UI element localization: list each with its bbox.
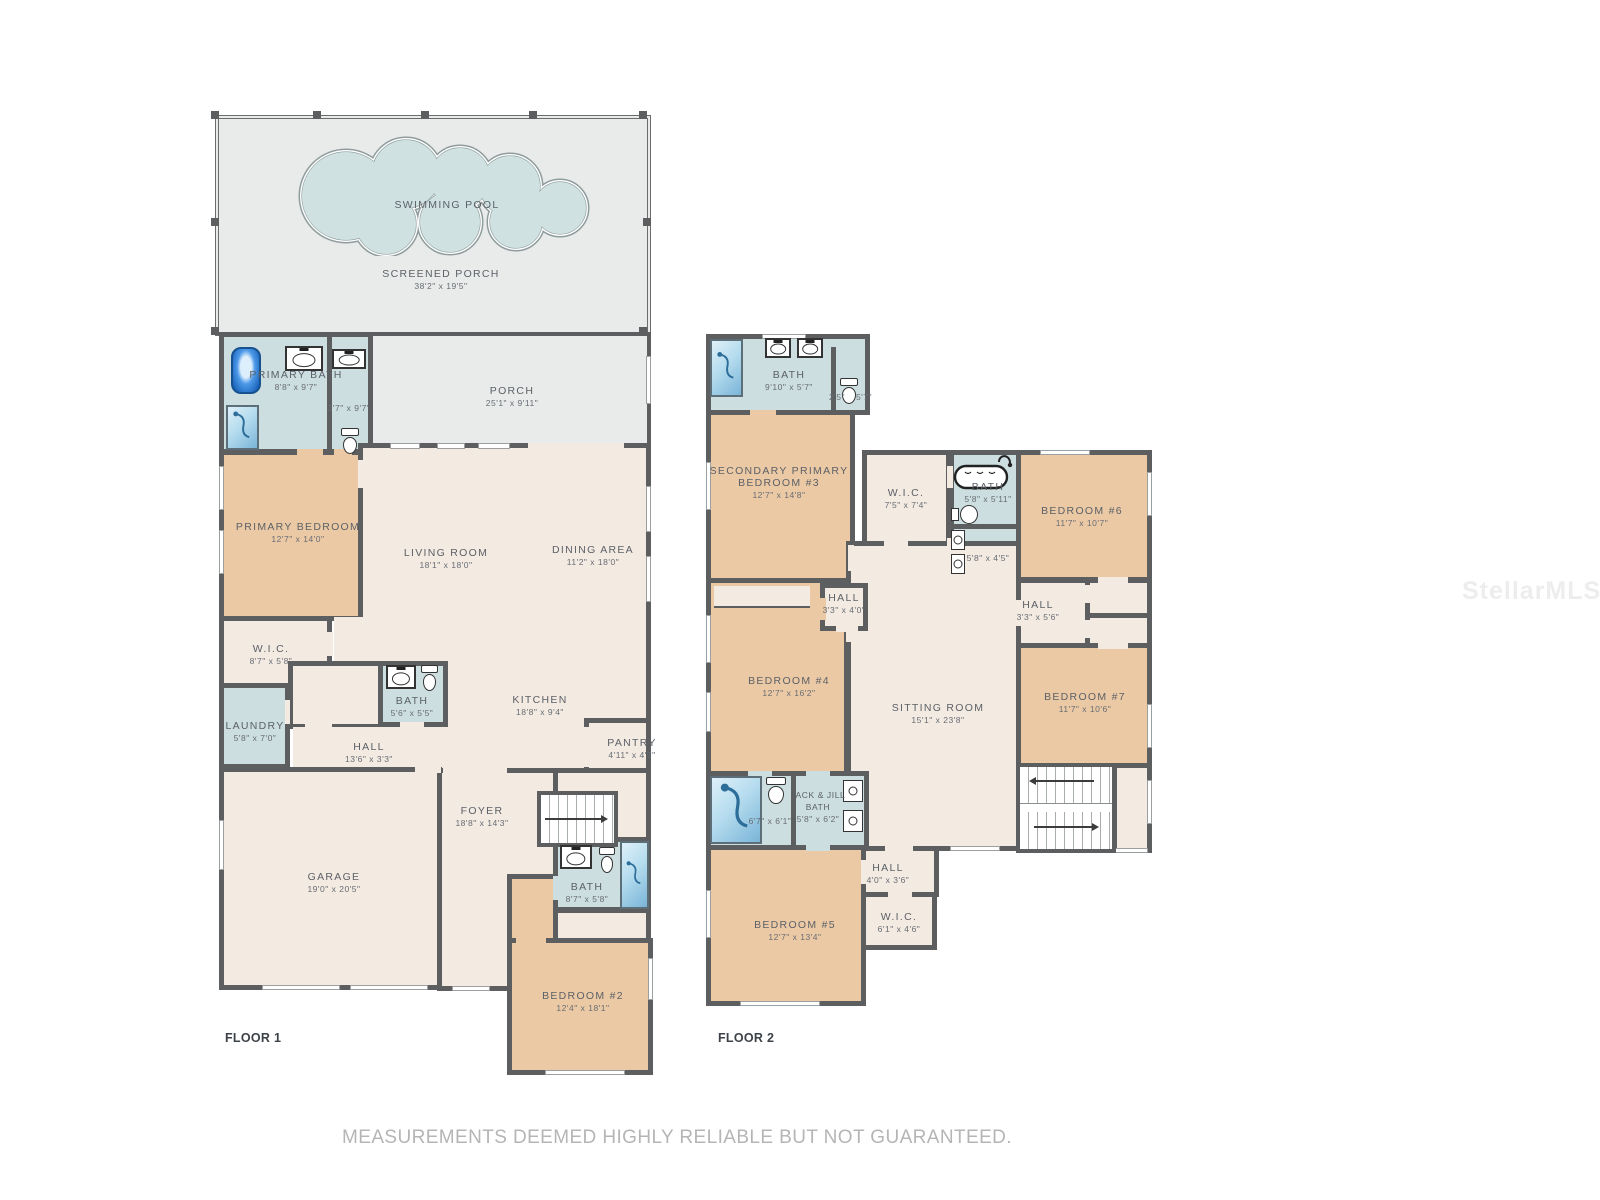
room-dims: 6'1" x 4'6" [878,924,921,935]
sink-icon [797,338,823,358]
hall-b-label: HALL 3'3" x 5'6" [1017,599,1060,623]
door-opening [584,736,590,758]
room-dims: 13'6" x 3'3" [345,754,393,765]
room-name: PRIMARY BEDROOM [236,521,360,533]
room-sitting [846,541,1021,851]
window [1040,450,1090,455]
bedroom5-label: BEDROOM #5 12'7" x 13'4" [754,919,836,943]
window [390,443,420,449]
garage-label: GARAGE 19'0" x 20'5" [307,871,360,895]
bedroom4-label: BEDROOM #4 12'7" x 16'2" [748,675,830,699]
room-name: BEDROOM #6 [1041,505,1123,517]
room-dims: 9'10" x 5'7" [765,382,813,393]
linen-label: 5'8" x 4'5" [967,552,1010,564]
door-opening [750,410,776,416]
floor2-caption: FLOOR 2 [718,1031,774,1045]
stair-arrow-head [601,815,608,823]
porch-post [211,218,219,226]
room-name: FOYER [455,805,508,817]
window [219,466,224,510]
wic3-label: W.I.C. 6'1" x 4'6" [878,911,921,935]
room-name: BATH [566,881,609,893]
cabinet-icon [951,554,965,574]
door-opening [400,722,424,728]
room-name: BEDROOM #4 [748,675,830,687]
room-name: HALL [1017,599,1060,611]
hall-a-label: HALL 3'3" x 4'0" [823,592,866,616]
room-closet-b1 [1085,578,1152,618]
room-dims: 3'3" x 5'6" [1017,612,1060,623]
shower-room-label: 6'7" x 6'1" [749,815,792,827]
stair-arrow-line [1036,780,1094,782]
window [478,443,510,449]
bedroom3-label: SECONDARY PRIMARY BEDROOM #3 12'7" x 14'… [710,465,849,501]
water-closet-label: 3'7" x 9'7" [328,402,371,414]
room-dims: 12'7" x 14'0" [236,534,360,545]
bedroom-corridor-floor [334,617,378,661]
door-opening [806,771,830,777]
door-opening [297,449,323,455]
window [437,443,465,449]
wic2-label: W.I.C. 7'5" x 7'4" [885,487,928,511]
swimming-pool-label: SWIMMING POOL [395,199,500,211]
living-room-label: LIVING ROOM 18'1" x 18'0" [404,547,488,571]
room-dims: 12'7" x 14'8" [710,490,849,501]
room-name: W.I.C. [878,911,921,923]
toilet-icon [599,847,615,873]
window [706,615,711,663]
window [1147,704,1152,748]
room-name: W.I.C. [885,487,928,499]
room-name: W.I.C. [250,643,293,655]
room-dims: 25'1" x 9'11" [486,398,539,409]
room-dims: 19'0" x 20'5" [307,884,360,895]
disclaimer-text: MEASUREMENTS DEEMED HIGHLY RELIABLE BUT … [177,1127,1177,1149]
porch-post [211,111,219,119]
room-dims: 12'4" x 18'1" [542,1003,624,1014]
room-name: BEDROOM #5 [754,919,836,931]
wic-label: W.I.C. 8'7" x 5'8" [250,643,293,667]
bath4-label: BATH 5'8" x 5'11" [964,481,1011,505]
window [706,890,711,938]
porch-post [211,327,219,335]
door-opening [884,541,908,547]
room-name: BATH [964,481,1011,493]
room-dims: 12'7" x 13'4" [754,932,836,943]
room-dims: 8'8" x 9'7" [249,382,342,393]
door-opening [415,767,441,773]
bath2-label: BATH 8'7" x 5'8" [566,881,609,905]
pantry-label: PANTRY 4'11" x 4'7" [607,737,656,761]
room-name: GARAGE [307,871,360,883]
room-name: BEDROOM #7 [1044,691,1126,703]
floor2-plan: BATH 9'10" x 5'7" 2'5" 5'7" SECONDARY PR… [0,0,1600,1200]
room-stair-lobby [1112,763,1152,853]
stair-arrow-line [545,818,601,820]
sink-icon [386,665,416,689]
window [1147,780,1152,824]
porch-post [529,111,537,119]
room-name: HALL [345,741,393,753]
room-dims: 5'8" x 6'2" [791,814,846,825]
jack-jill-label: JACK & JILL BATH 5'8" x 6'2" [791,789,846,825]
room-dims: 2'5" [829,392,845,403]
room-dims: 11'7" x 10'7" [1041,518,1123,529]
room-dims: 4'11" x 4'7" [607,750,656,761]
door-opening [885,846,913,852]
sink-icon [285,346,323,371]
room-dims: 8'7" x 5'8" [250,656,293,667]
shower-icon [710,776,762,844]
wc2-dims-right: 5'7" [856,391,872,403]
hall-c-label: HALL 4'0" x 3'6" [867,862,910,886]
porch-label: PORCH 25'1" x 9'11" [486,385,539,409]
door-opening [327,632,333,656]
porch-post [639,327,647,335]
shower-icon [226,405,259,450]
window [350,985,428,990]
stair-treads [1020,767,1112,803]
window [648,958,653,1000]
room-dims: 3'7" x 9'7" [328,403,371,414]
sitting-room-label: SITTING ROOM 15'1" x 23'8" [892,702,985,726]
window [1147,472,1152,516]
vanity-icon [843,810,863,832]
room-name: SCREENED PORCH [382,268,499,280]
wc-divider-wall [831,347,836,415]
room-dims: 12'7" x 16'2" [748,688,830,699]
dining-area-label: DINING AREA 11'2" x 18'0" [552,544,634,568]
primary-bath-label: PRIMARY BATH 8'8" x 9'7" [249,369,342,393]
bath3-label: BATH 9'10" x 5'7" [765,369,813,393]
room-name: BATH [391,695,434,707]
room-name: LIVING ROOM [404,547,488,559]
door-opening [848,545,854,571]
room-dims: 18'8" x 9'4" [512,707,567,718]
screened-porch-label: SCREENED PORCH 38'2" x 19'5" [382,268,499,292]
sink-icon [332,349,366,369]
shower-icon [620,841,649,909]
porch-post [643,218,651,226]
porch-post [639,111,647,119]
shower-icon [710,339,743,397]
cabinet-icon [951,530,965,550]
floor-plan-canvas: SWIMMING POOL SCREENED PORCH 38'2" x 19'… [0,0,1600,1200]
sink-icon [765,338,791,358]
toilet-icon [421,665,438,691]
room-name: JACK & JILL [791,789,846,801]
window [646,356,651,404]
bedroom6-label: BEDROOM #6 11'7" x 10'7" [1041,505,1123,529]
door-opening [285,700,290,724]
stellar-mls-watermark: StellarMLS [1462,577,1600,606]
room-dims: 5'8" x 4'5" [967,553,1010,564]
door-opening [443,768,507,774]
stair-arrow-head [1092,823,1099,831]
room-dims: 11'7" x 10'6" [1044,704,1126,715]
door-opening [553,876,559,900]
window-bay-floor [714,586,810,606]
window [950,846,1000,851]
window [740,1001,820,1006]
toilet-icon [341,428,359,454]
room-dims: 11'2" x 18'0" [552,557,634,568]
room-dims: 5'8" x 5'11" [964,494,1011,505]
kitchen-label: KITCHEN 18'8" x 9'4" [512,694,567,718]
door-opening [305,723,332,729]
room-dims: 7'5" x 7'4" [885,500,928,511]
porch-post [421,111,429,119]
bedroom2-label: BEDROOM #2 12'4" x 18'1" [542,990,624,1014]
door-opening [358,460,364,488]
room-name: BATH [765,369,813,381]
stair-arrow-head [1029,777,1036,785]
room-dims: 5'6" x 5'5" [391,708,434,719]
porch-post [313,111,321,119]
room-name: KITCHEN [512,694,567,706]
door-opening [836,626,858,632]
door-opening [1085,620,1091,638]
wc2-dims-left: 2'5" [829,391,845,403]
swimming-pool [288,134,608,256]
door-opening [1098,577,1128,583]
sliding-door-opening [528,443,624,449]
room-name: SWIMMING POOL [395,199,500,211]
room-dims: 6'7" x 6'1" [749,816,792,827]
door-opening [806,845,830,851]
window [646,486,651,532]
room-name: DINING AREA [552,544,634,556]
room-name: HALL [823,592,866,604]
room-name: BEDROOM #3 [710,477,849,489]
window [262,985,340,990]
bedroom7-label: BEDROOM #7 11'7" x 10'6" [1044,691,1126,715]
toilet-icon [766,777,786,804]
room-name: SECONDARY PRIMARY [710,465,849,477]
bath1-label: BATH 5'6" x 5'5" [391,695,434,719]
window [219,530,224,574]
room-name: PRIMARY BATH [249,369,342,381]
laundry-label: LAUNDRY 5'8" x 7'0" [225,720,284,744]
hall-label: HALL 13'6" x 3'3" [345,741,393,765]
primary-bedroom-label: PRIMARY BEDROOM 12'7" x 14'0" [236,521,360,545]
toilet-icon [951,505,979,524]
room-dims: 18'8" x 14'3" [455,818,508,829]
window [706,692,711,732]
window [219,820,224,870]
window [545,1070,625,1075]
room-name: SITTING ROOM [892,702,985,714]
floor1-caption: FLOOR 1 [225,1031,281,1045]
window [646,556,651,602]
foyer-label: FOYER 18'8" x 14'3" [455,805,508,829]
door-opening [888,892,912,898]
front-door [452,986,490,991]
room-dims: 4'0" x 3'6" [867,875,910,886]
room-dims: 5'7" [856,392,872,403]
room-name: LAUNDRY [225,720,284,732]
door-opening [1085,585,1091,603]
room-dims: 18'1" x 18'0" [404,560,488,571]
vanity-icon [843,780,863,802]
room-dims: 8'7" x 5'8" [566,894,609,905]
room-dims: 15'1" x 23'8" [892,715,985,726]
sink-icon [560,845,592,869]
stair-arrow-line [1034,826,1092,828]
room-name: PANTRY [607,737,656,749]
room-name: HALL [867,862,910,874]
room-name: BATH [791,801,846,813]
door-opening [516,938,546,944]
door-opening [1098,643,1128,649]
room-dims: 3'3" x 4'0" [823,605,866,616]
room-dims: 38'2" x 19'5" [382,281,499,292]
room-name: BEDROOM #2 [542,990,624,1002]
room-name: PORCH [486,385,539,397]
room-dims: 5'8" x 7'0" [225,733,284,744]
